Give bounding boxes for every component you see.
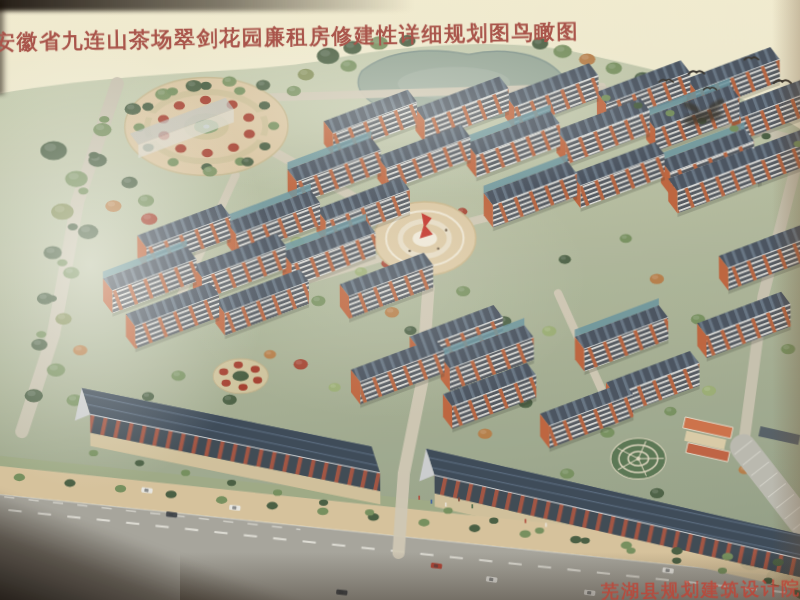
aerial-rendering-scene	[0, 0, 800, 600]
spiral-garden	[611, 438, 667, 479]
photographed-plan-page: 安徽省九连山茶场翠剑花园廉租房修建性详细规划图鸟瞰图 芜湖县规划建筑设计院	[0, 0, 800, 600]
small-round-garden	[213, 359, 268, 394]
design-institute-credit: 芜湖县规划建筑设计院	[601, 576, 800, 600]
